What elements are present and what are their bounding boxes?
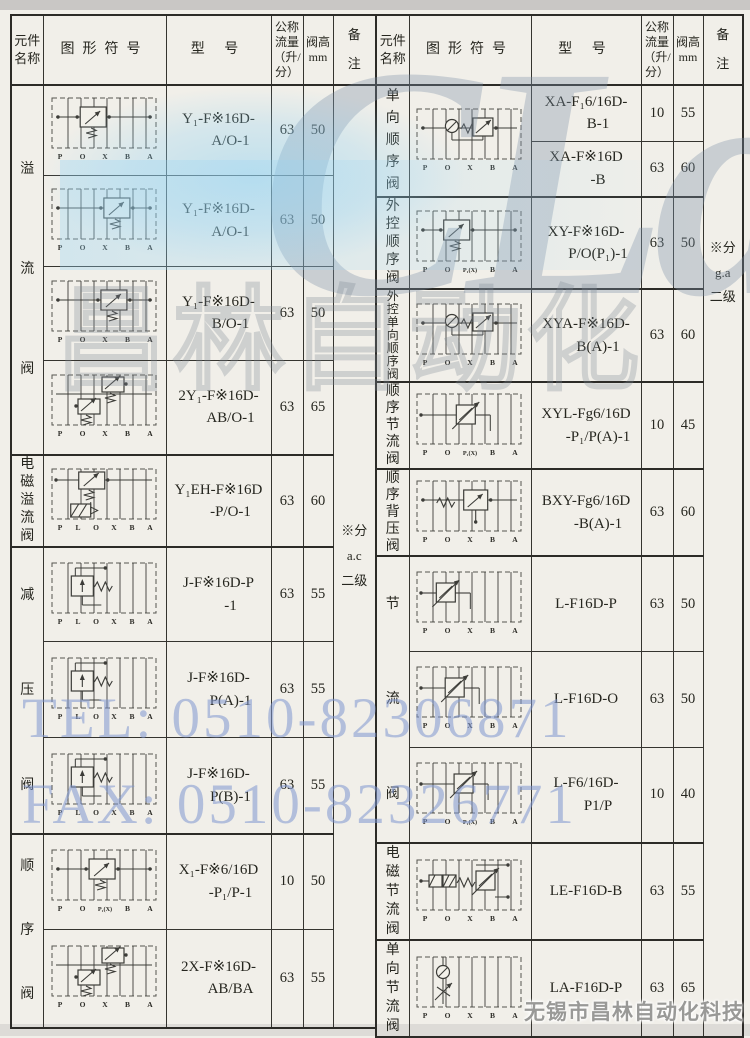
height-cell: 45 bbox=[673, 382, 703, 469]
svg-text:O: O bbox=[79, 335, 85, 344]
component-name-cell: 电磁节流阀 bbox=[376, 843, 409, 940]
svg-text:O: O bbox=[79, 429, 85, 438]
svg-text:L: L bbox=[75, 523, 80, 532]
symbol-cell: POP₁(X)BA bbox=[409, 382, 531, 469]
valve-symbol-icon: POP₁(X)BA bbox=[413, 391, 527, 461]
svg-text:O: O bbox=[93, 808, 99, 817]
svg-text:A: A bbox=[147, 429, 153, 438]
svg-text:B: B bbox=[490, 535, 495, 544]
svg-text:P: P bbox=[423, 163, 428, 172]
svg-text:B: B bbox=[490, 626, 495, 635]
valve-symbol-icon: PLOXBA bbox=[48, 751, 162, 821]
table-row: 外控单向顺序阀POXBAXYA-F※16D-B(A)-16360 bbox=[376, 289, 743, 382]
height-cell: 40 bbox=[673, 747, 703, 843]
component-name-cell: 溢流阀 bbox=[11, 85, 43, 455]
model-cell: BXY-Fg6/16D-B(A)-1 bbox=[531, 469, 641, 556]
svg-text:P: P bbox=[57, 904, 62, 913]
symbol-cell: POXBA bbox=[409, 469, 531, 556]
svg-text:L: L bbox=[75, 712, 80, 721]
valve-symbol-icon: POP₁(X)BA bbox=[413, 760, 527, 830]
header-symbol: 图形符号 bbox=[43, 15, 166, 85]
svg-text:B: B bbox=[490, 721, 495, 730]
svg-text:X: X bbox=[467, 163, 473, 172]
svg-text:B: B bbox=[490, 448, 495, 457]
flow-cell: 63 bbox=[641, 197, 673, 289]
svg-text:O: O bbox=[445, 163, 451, 172]
component-name-cell: 单向节流阀 bbox=[376, 940, 409, 1037]
svg-text:O: O bbox=[445, 358, 451, 367]
model-cell: 2X-F※16D-AB/BA bbox=[166, 929, 271, 1028]
svg-text:O: O bbox=[79, 904, 85, 913]
flow-cell: 10 bbox=[271, 834, 303, 929]
height-cell: 55 bbox=[303, 642, 333, 738]
symbol-cell: POXBA bbox=[43, 175, 166, 266]
svg-text:P: P bbox=[423, 535, 428, 544]
flow-cell: 10 bbox=[641, 382, 673, 469]
header-row: 元件名称 图形符号 型 号 公称流量（升/分） 阀高mm 备注 bbox=[376, 15, 743, 85]
svg-text:X: X bbox=[102, 1000, 108, 1009]
svg-text:O: O bbox=[445, 535, 451, 544]
table-row: 溢流阀POXBAY₁-F※16D-A/O-16350※分a.c二级 bbox=[11, 85, 376, 175]
svg-text:A: A bbox=[147, 712, 153, 721]
svg-text:B: B bbox=[490, 1011, 495, 1020]
component-name-cell: 顺序阀 bbox=[11, 834, 43, 1028]
svg-text:B: B bbox=[490, 163, 495, 172]
svg-text:P: P bbox=[57, 712, 62, 721]
model-cell: J-F※16D-P(A)-1 bbox=[166, 642, 271, 738]
flow-cell: 63 bbox=[271, 360, 303, 455]
scan-top-band bbox=[0, 0, 750, 10]
flow-cell: 10 bbox=[641, 85, 673, 141]
svg-text:P₁(X): P₁(X) bbox=[463, 819, 477, 826]
header-flow: 公称流量（升/分） bbox=[271, 15, 303, 85]
valve-symbol-icon: POXBA bbox=[413, 478, 527, 548]
svg-text:P₁(X): P₁(X) bbox=[463, 267, 477, 274]
header-model: 型 号 bbox=[166, 15, 271, 85]
svg-text:P: P bbox=[423, 914, 428, 923]
model-cell: 2Y₁-F※16D-AB/O-1 bbox=[166, 360, 271, 455]
flow-cell: 63 bbox=[641, 556, 673, 652]
symbol-cell: POXBA bbox=[409, 940, 531, 1037]
svg-text:A: A bbox=[512, 358, 518, 367]
svg-text:P₁(X): P₁(X) bbox=[463, 450, 477, 457]
svg-text:O: O bbox=[445, 1011, 451, 1020]
svg-text:P: P bbox=[423, 817, 428, 826]
height-cell: 55 bbox=[673, 85, 703, 141]
flow-cell: 63 bbox=[641, 141, 673, 197]
flow-cell: 63 bbox=[271, 738, 303, 834]
symbol-cell: POXBA bbox=[43, 929, 166, 1028]
svg-text:X: X bbox=[111, 712, 117, 721]
svg-text:P: P bbox=[57, 1000, 62, 1009]
svg-text:O: O bbox=[93, 712, 99, 721]
svg-text:P: P bbox=[57, 808, 62, 817]
valve-symbol-icon: POXBA bbox=[48, 372, 162, 442]
table-row: 顺序阀POP₁(X)BAX₁-F※6/16D-P₁/P-11050 bbox=[11, 834, 376, 929]
svg-text:B: B bbox=[490, 817, 495, 826]
height-cell: 50 bbox=[673, 556, 703, 652]
flow-cell: 63 bbox=[271, 929, 303, 1028]
table-row: POP₁(X)BAL-F6/16D-P1/P1040 bbox=[376, 747, 743, 843]
component-name-cell: 减压阀 bbox=[11, 547, 43, 834]
symbol-cell: PLOXBA bbox=[43, 642, 166, 738]
flow-cell: 10 bbox=[641, 747, 673, 843]
table-row: 电磁节流阀POXBALE-F16D-B6355 bbox=[376, 843, 743, 940]
valve-symbol-icon: POXBA bbox=[413, 301, 527, 371]
table-row: POXBAL-F16D-O6350 bbox=[376, 652, 743, 748]
symbol-cell: POXBA bbox=[43, 360, 166, 455]
svg-text:P: P bbox=[57, 152, 62, 161]
svg-text:X: X bbox=[467, 358, 473, 367]
height-cell: 60 bbox=[673, 469, 703, 556]
header-note: 备注 bbox=[333, 15, 376, 85]
flow-cell: 63 bbox=[271, 455, 303, 547]
table-row: POXBA2X-F※16D-AB/BA6355 bbox=[11, 929, 376, 1028]
flow-cell: 63 bbox=[641, 843, 673, 940]
svg-text:B: B bbox=[124, 904, 129, 913]
model-cell: LE-F16D-B bbox=[531, 843, 641, 940]
symbol-cell: PLOXBA bbox=[43, 455, 166, 547]
svg-text:O: O bbox=[93, 523, 99, 532]
model-cell: Y₁-F※16D-B/O-1 bbox=[166, 266, 271, 360]
symbol-cell: POP₁(X)BA bbox=[409, 747, 531, 843]
height-cell: 55 bbox=[303, 547, 333, 642]
symbol-cell: POXBA bbox=[43, 266, 166, 360]
height-cell: 50 bbox=[673, 197, 703, 289]
table-row: 顺序背压阀POXBABXY-Fg6/16D-B(A)-16360 bbox=[376, 469, 743, 556]
valve-symbol-icon: POP₁(X)BA bbox=[48, 847, 162, 917]
header-component-name: 元件名称 bbox=[376, 15, 409, 85]
svg-text:P: P bbox=[423, 358, 428, 367]
svg-text:X: X bbox=[111, 523, 117, 532]
svg-text:O: O bbox=[93, 617, 99, 626]
valve-symbol-icon: PLOXBA bbox=[48, 655, 162, 725]
height-cell: 60 bbox=[673, 141, 703, 197]
svg-text:X: X bbox=[467, 626, 473, 635]
right-table: 元件名称 图形符号 型 号 公称流量（升/分） 阀高mm 备注 单向顺序阀POX… bbox=[375, 14, 744, 1038]
svg-text:X: X bbox=[467, 914, 473, 923]
model-cell: L-F16D-O bbox=[531, 652, 641, 748]
svg-text:L: L bbox=[75, 617, 80, 626]
table-row: PLOXBAJ-F※16D-P(A)-16355 bbox=[11, 642, 376, 738]
svg-text:X: X bbox=[102, 335, 108, 344]
valve-symbol-icon: POXBA bbox=[413, 954, 527, 1024]
valve-symbol-icon: PLOXBA bbox=[48, 560, 162, 630]
svg-text:O: O bbox=[445, 721, 451, 730]
svg-text:A: A bbox=[147, 152, 153, 161]
table-row: 顺序节流阀POP₁(X)BAXYL-Fg6/16D-P₁/P(A)-11045 bbox=[376, 382, 743, 469]
note-cell: ※分g.a二级 bbox=[703, 85, 743, 1037]
svg-text:P: P bbox=[57, 243, 62, 252]
svg-text:B: B bbox=[124, 429, 129, 438]
model-cell: L-F16D-P bbox=[531, 556, 641, 652]
model-cell: XYA-F※16D-B(A)-1 bbox=[531, 289, 641, 382]
flow-cell: 63 bbox=[271, 642, 303, 738]
svg-text:B: B bbox=[490, 265, 495, 274]
svg-text:X: X bbox=[467, 1011, 473, 1020]
svg-text:B: B bbox=[129, 808, 134, 817]
valve-symbol-icon: POXBA bbox=[48, 95, 162, 165]
component-name-cell: 电磁溢流阀 bbox=[11, 455, 43, 547]
height-cell: 55 bbox=[673, 843, 703, 940]
model-cell: L-F6/16D-P1/P bbox=[531, 747, 641, 843]
model-cell: Y₁-F※16D-A/O-1 bbox=[166, 175, 271, 266]
svg-text:X: X bbox=[111, 808, 117, 817]
svg-text:A: A bbox=[512, 626, 518, 635]
symbol-cell: POXBA bbox=[409, 556, 531, 652]
svg-text:X: X bbox=[467, 721, 473, 730]
model-cell: XA-F※16D-B bbox=[531, 141, 641, 197]
height-cell: 50 bbox=[303, 175, 333, 266]
symbol-cell: POXBA bbox=[409, 85, 531, 197]
header-component-name: 元件名称 bbox=[11, 15, 43, 85]
svg-text:P: P bbox=[423, 1011, 428, 1020]
svg-text:A: A bbox=[512, 448, 518, 457]
svg-text:P: P bbox=[423, 721, 428, 730]
height-cell: 65 bbox=[303, 360, 333, 455]
svg-text:B: B bbox=[490, 914, 495, 923]
table-row: PLOXBAJ-F※16D-P(B)-16355 bbox=[11, 738, 376, 834]
svg-text:A: A bbox=[147, 904, 153, 913]
svg-text:L: L bbox=[75, 808, 80, 817]
svg-text:B: B bbox=[124, 1000, 129, 1009]
svg-text:P: P bbox=[57, 523, 62, 532]
flow-cell: 63 bbox=[641, 652, 673, 748]
svg-text:X: X bbox=[102, 152, 108, 161]
component-name-cell: 顺序背压阀 bbox=[376, 469, 409, 556]
svg-text:X: X bbox=[102, 243, 108, 252]
svg-text:A: A bbox=[512, 1011, 518, 1020]
flow-cell: 63 bbox=[271, 547, 303, 642]
svg-text:O: O bbox=[445, 626, 451, 635]
valve-symbol-icon: POXBA bbox=[48, 278, 162, 348]
height-cell: 50 bbox=[673, 652, 703, 748]
flow-cell: 63 bbox=[271, 85, 303, 175]
symbol-cell: PLOXBA bbox=[43, 547, 166, 642]
header-row: 元件名称 图形符号 型 号 公称流量（升/分） 阀高mm 备注 bbox=[11, 15, 376, 85]
svg-text:P: P bbox=[423, 626, 428, 635]
table-row: POXBA2Y₁-F※16D-AB/O-16365 bbox=[11, 360, 376, 455]
flow-cell: 63 bbox=[271, 266, 303, 360]
svg-text:O: O bbox=[445, 448, 451, 457]
model-cell: LA-F16D-P bbox=[531, 940, 641, 1037]
height-cell: 55 bbox=[303, 738, 333, 834]
valve-symbol-icon: POXBA bbox=[413, 569, 527, 639]
model-cell: J-F※16D-P-1 bbox=[166, 547, 271, 642]
header-valve-height: 阀高mm bbox=[303, 15, 333, 85]
left-table: 元件名称 图形符号 型 号 公称流量（升/分） 阀高mm 备注 溢流阀POXBA… bbox=[10, 14, 377, 1029]
flow-cell: 63 bbox=[641, 940, 673, 1037]
svg-text:A: A bbox=[147, 523, 153, 532]
svg-text:X: X bbox=[467, 535, 473, 544]
table-row: 外控顺序阀POP₁(X)BAXY-F※16D-P/O(P₁)-16350 bbox=[376, 197, 743, 289]
table-row: 单向节流阀POXBALA-F16D-P6365 bbox=[376, 940, 743, 1037]
model-cell: XA-F₁6/16D-B-1 bbox=[531, 85, 641, 141]
svg-text:A: A bbox=[147, 1000, 153, 1009]
height-cell: 50 bbox=[303, 85, 333, 175]
symbol-cell: POXBA bbox=[409, 843, 531, 940]
svg-text:O: O bbox=[445, 265, 451, 274]
svg-text:O: O bbox=[79, 243, 85, 252]
svg-text:B: B bbox=[490, 358, 495, 367]
svg-text:P: P bbox=[423, 448, 428, 457]
model-cell: J-F※16D-P(B)-1 bbox=[166, 738, 271, 834]
svg-text:A: A bbox=[512, 817, 518, 826]
svg-text:A: A bbox=[512, 914, 518, 923]
table-row: 节流阀POXBAL-F16D-P6350 bbox=[376, 556, 743, 652]
flow-cell: 63 bbox=[641, 289, 673, 382]
flow-cell: 63 bbox=[641, 469, 673, 556]
component-name-cell: 单向顺序阀 bbox=[376, 85, 409, 197]
header-model: 型 号 bbox=[531, 15, 641, 85]
svg-text:P: P bbox=[57, 429, 62, 438]
valve-symbol-icon: POXBA bbox=[48, 943, 162, 1013]
symbol-cell: PLOXBA bbox=[43, 738, 166, 834]
symbol-cell: POP₁(X)BA bbox=[409, 197, 531, 289]
height-cell: 50 bbox=[303, 834, 333, 929]
svg-text:A: A bbox=[147, 808, 153, 817]
svg-text:B: B bbox=[129, 712, 134, 721]
header-valve-height: 阀高mm bbox=[673, 15, 703, 85]
component-name-cell: 顺序节流阀 bbox=[376, 382, 409, 469]
symbol-cell: POXBA bbox=[409, 289, 531, 382]
svg-text:O: O bbox=[79, 1000, 85, 1009]
svg-text:P₁(X): P₁(X) bbox=[97, 906, 111, 913]
valve-symbol-icon: PLOXBA bbox=[48, 466, 162, 536]
svg-text:A: A bbox=[147, 617, 153, 626]
svg-text:A: A bbox=[512, 163, 518, 172]
height-cell: 65 bbox=[673, 940, 703, 1037]
svg-text:B: B bbox=[129, 523, 134, 532]
header-symbol: 图形符号 bbox=[409, 15, 531, 85]
height-cell: 60 bbox=[303, 455, 333, 547]
svg-text:X: X bbox=[111, 617, 117, 626]
svg-text:A: A bbox=[512, 535, 518, 544]
model-cell: XY-F※16D-P/O(P₁)-1 bbox=[531, 197, 641, 289]
svg-text:X: X bbox=[102, 429, 108, 438]
table-row: 单向顺序阀POXBAXA-F₁6/16D-B-11055※分g.a二级 bbox=[376, 85, 743, 141]
symbol-cell: POXBA bbox=[409, 652, 531, 748]
svg-text:A: A bbox=[512, 265, 518, 274]
height-cell: 50 bbox=[303, 266, 333, 360]
svg-text:B: B bbox=[124, 335, 129, 344]
symbol-cell: POP₁(X)BA bbox=[43, 834, 166, 929]
model-cell: Y₁EH-F※16D-P/O-1 bbox=[166, 455, 271, 547]
component-name-cell: 外控单向顺序阀 bbox=[376, 289, 409, 382]
svg-text:B: B bbox=[124, 243, 129, 252]
svg-text:B: B bbox=[124, 152, 129, 161]
svg-text:A: A bbox=[147, 335, 153, 344]
header-note: 备注 bbox=[703, 15, 743, 85]
valve-symbol-icon: POXBA bbox=[413, 106, 527, 176]
flow-cell: 63 bbox=[271, 175, 303, 266]
table-row: POXBAY₁-F※16D-B/O-16350 bbox=[11, 266, 376, 360]
svg-text:A: A bbox=[512, 721, 518, 730]
symbol-cell: POXBA bbox=[43, 85, 166, 175]
svg-text:P: P bbox=[57, 335, 62, 344]
svg-text:O: O bbox=[79, 152, 85, 161]
valve-symbol-icon: POXBA bbox=[48, 186, 162, 256]
valve-symbol-icon: POP₁(X)BA bbox=[413, 208, 527, 278]
height-cell: 55 bbox=[303, 929, 333, 1028]
svg-text:B: B bbox=[129, 617, 134, 626]
note-cell: ※分a.c二级 bbox=[333, 85, 376, 1028]
table-row: POXBAY₁-F※16D-A/O-16350 bbox=[11, 175, 376, 266]
header-flow: 公称流量（升/分） bbox=[641, 15, 673, 85]
valve-symbol-icon: POXBA bbox=[413, 857, 527, 927]
component-name-cell: 外控顺序阀 bbox=[376, 197, 409, 289]
height-cell: 60 bbox=[673, 289, 703, 382]
component-name-cell: 节流阀 bbox=[376, 556, 409, 843]
svg-text:P: P bbox=[423, 265, 428, 274]
table-row: 减压阀PLOXBAJ-F※16D-P-16355 bbox=[11, 547, 376, 642]
catalog-page: { "colors": { "paper": "#f1efe9", "borde… bbox=[0, 0, 750, 1036]
valve-symbol-icon: POXBA bbox=[413, 664, 527, 734]
model-cell: XYL-Fg6/16D-P₁/P(A)-1 bbox=[531, 382, 641, 469]
svg-text:O: O bbox=[445, 817, 451, 826]
svg-text:P: P bbox=[57, 617, 62, 626]
model-cell: X₁-F※6/16D-P₁/P-1 bbox=[166, 834, 271, 929]
table-row: 电磁溢流阀PLOXBAY₁EH-F※16D-P/O-16360 bbox=[11, 455, 376, 547]
svg-text:O: O bbox=[445, 914, 451, 923]
model-cell: Y₁-F※16D-A/O-1 bbox=[166, 85, 271, 175]
svg-text:A: A bbox=[147, 243, 153, 252]
